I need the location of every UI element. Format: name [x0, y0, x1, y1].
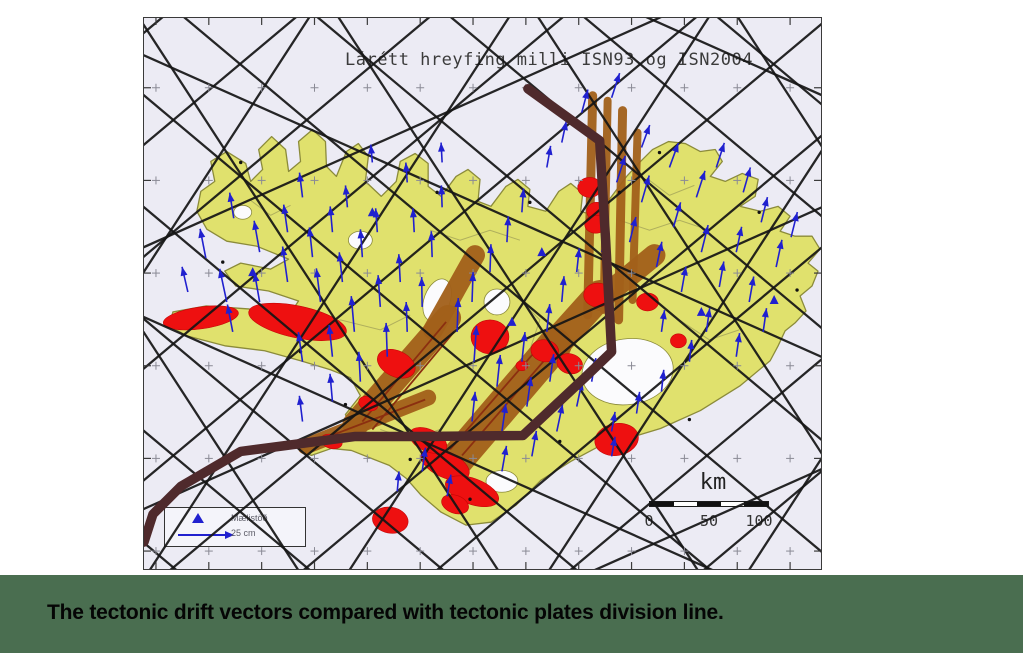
map-canvas — [144, 18, 821, 569]
figure-caption: The tectonic drift vectors compared with… — [47, 601, 724, 625]
caption-band: The tectonic drift vectors compared with… — [0, 575, 1023, 653]
iceland-drift-map: Lárétt hreyfing milli ISN93 og ISN2004 M… — [143, 17, 822, 570]
figure: Lárétt hreyfing milli ISN93 og ISN2004 M… — [0, 0, 1023, 653]
